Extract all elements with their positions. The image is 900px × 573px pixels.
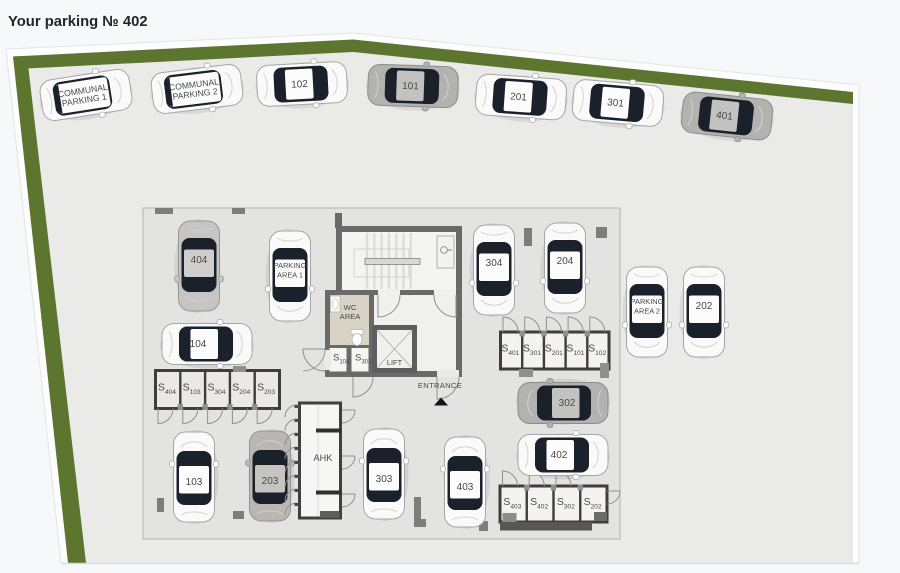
svg-text:202: 202 xyxy=(696,301,713,312)
svg-text:402: 402 xyxy=(551,450,568,461)
svg-text:301: 301 xyxy=(607,97,625,109)
svg-text:101: 101 xyxy=(402,81,419,93)
svg-text:401: 401 xyxy=(716,110,734,123)
svg-text:303: 303 xyxy=(376,474,393,485)
svg-text:ENTRANCE: ENTRANCE xyxy=(418,381,462,390)
svg-text:404: 404 xyxy=(191,255,208,266)
svg-text:LIFT: LIFT xyxy=(387,358,403,367)
svg-text:102: 102 xyxy=(291,79,309,91)
svg-text:PARKINGAREA 2: PARKINGAREA 2 xyxy=(631,297,664,315)
svg-text:203: 203 xyxy=(262,476,279,487)
svg-text:PARKINGAREA 1: PARKINGAREA 1 xyxy=(274,261,307,279)
svg-text:104: 104 xyxy=(190,339,207,350)
svg-text:304: 304 xyxy=(486,258,503,269)
svg-text:WC: WC xyxy=(344,303,357,312)
svg-text:302: 302 xyxy=(559,398,576,409)
svg-text:403: 403 xyxy=(457,482,474,493)
svg-text:103: 103 xyxy=(186,477,203,488)
svg-text:AHK: AHK xyxy=(314,453,334,463)
svg-text:Your parking № 402: Your parking № 402 xyxy=(8,14,148,30)
svg-text:201: 201 xyxy=(510,91,528,103)
svg-text:204: 204 xyxy=(557,256,574,267)
svg-text:AREA: AREA xyxy=(340,312,362,321)
